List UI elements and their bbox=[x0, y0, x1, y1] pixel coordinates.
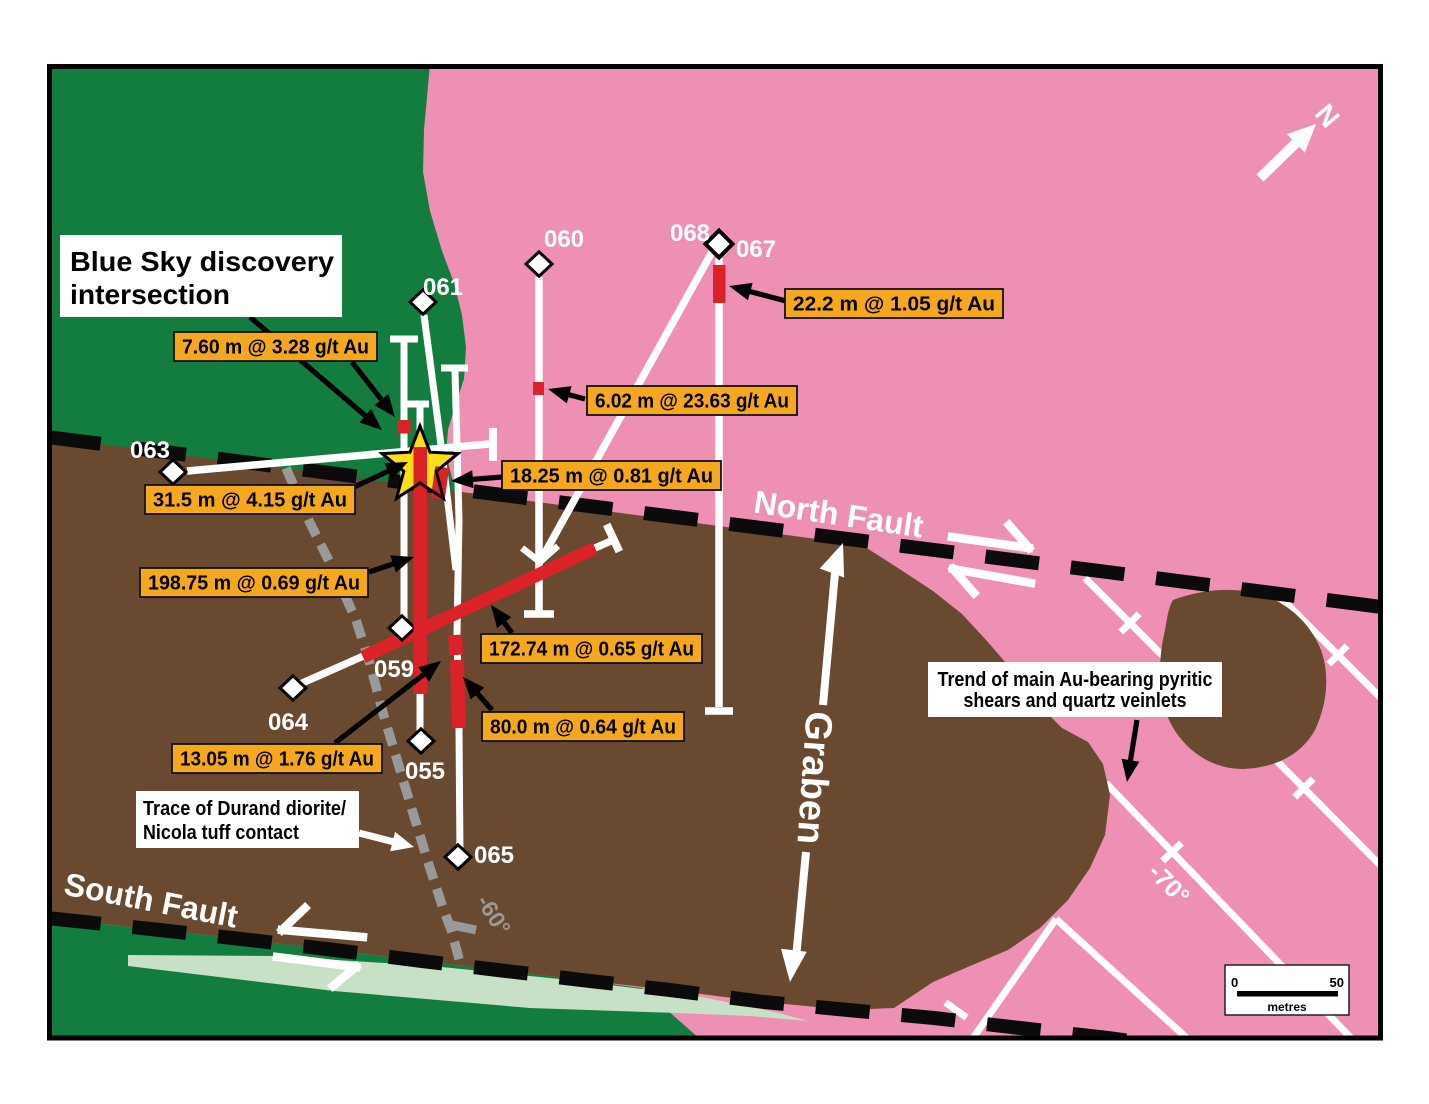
svg-text:Trace of Durand diorite/: Trace of Durand diorite/ bbox=[143, 798, 346, 820]
svg-text:13.05 m @ 1.76 g/t Au: 13.05 m @ 1.76 g/t Au bbox=[180, 749, 374, 771]
svg-text:Blue Sky discovery: Blue Sky discovery bbox=[70, 246, 334, 277]
svg-text:055: 055 bbox=[405, 758, 445, 785]
svg-text:80.0 m @ 0.64 g/t Au: 80.0 m @ 0.64 g/t Au bbox=[490, 717, 676, 739]
svg-text:18.25 m @ 0.81 g/t Au: 18.25 m @ 0.81 g/t Au bbox=[510, 466, 713, 488]
svg-text:metres: metres bbox=[1267, 1000, 1307, 1014]
svg-text:061: 061 bbox=[423, 274, 463, 301]
svg-text:50: 50 bbox=[1330, 975, 1344, 990]
svg-text:198.75 m @ 0.69 g/t Au: 198.75 m @ 0.69 g/t Au bbox=[148, 573, 360, 595]
svg-text:0: 0 bbox=[1231, 975, 1238, 990]
svg-text:064: 064 bbox=[268, 709, 309, 736]
svg-text:060: 060 bbox=[544, 226, 584, 253]
svg-text:6.02 m @ 23.63 g/t Au: 6.02 m @ 23.63 g/t Au bbox=[595, 391, 789, 413]
svg-text:shears and quartz veinlets: shears and quartz veinlets bbox=[964, 690, 1187, 712]
svg-text:31.5 m @ 4.15 g/t Au: 31.5 m @ 4.15 g/t Au bbox=[153, 490, 347, 512]
svg-text:065: 065 bbox=[474, 842, 514, 869]
svg-text:22.2 m @ 1.05 g/t Au: 22.2 m @ 1.05 g/t Au bbox=[793, 294, 995, 316]
svg-text:063: 063 bbox=[130, 437, 170, 464]
svg-text:intersection: intersection bbox=[70, 279, 230, 310]
svg-text:Trend of main Au-bearing pyrit: Trend of main Au-bearing pyritic bbox=[938, 669, 1213, 691]
svg-text:059: 059 bbox=[374, 656, 414, 683]
svg-text:172.74 m @ 0.65 g/t Au: 172.74 m @ 0.65 g/t Au bbox=[489, 639, 694, 661]
svg-text:Nicola tuff contact: Nicola tuff contact bbox=[143, 822, 299, 844]
svg-text:7.60 m @ 3.28 g/t Au: 7.60 m @ 3.28 g/t Au bbox=[182, 337, 369, 359]
svg-text:068: 068 bbox=[670, 220, 710, 247]
svg-text:067: 067 bbox=[736, 236, 776, 263]
